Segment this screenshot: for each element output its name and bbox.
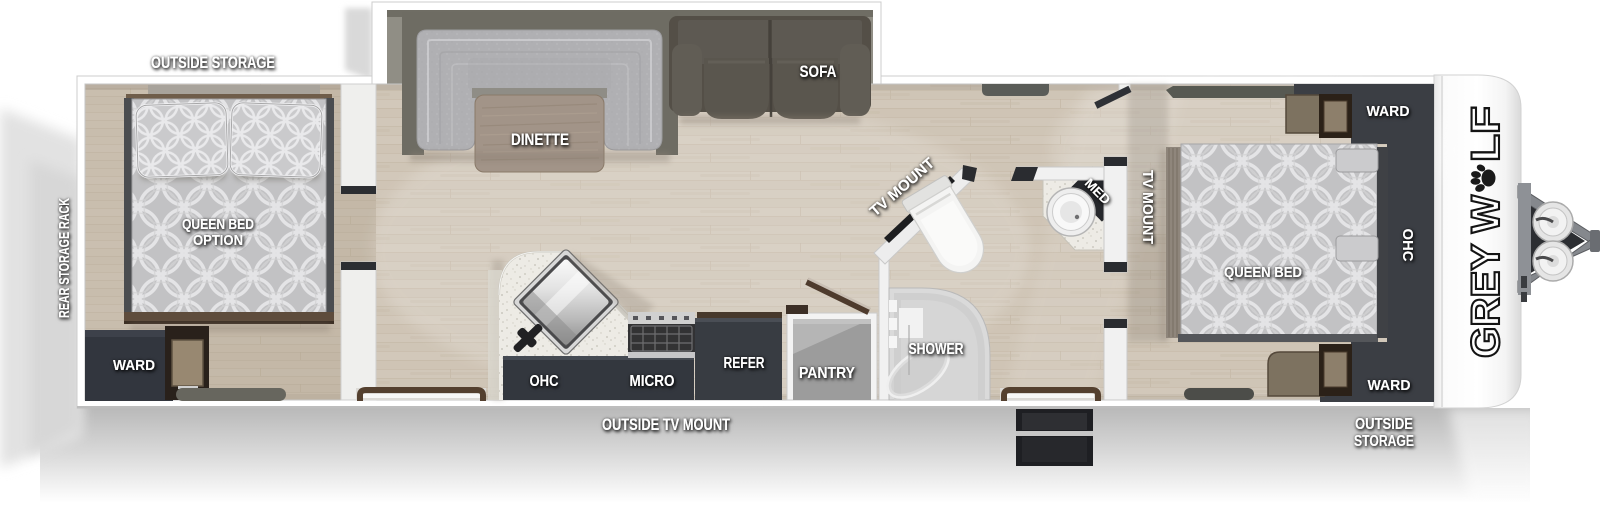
svg-text:LF: LF xyxy=(1464,106,1508,162)
svg-text:WARD: WARD xyxy=(113,357,155,374)
svg-text:REAR STORAGE RACK: REAR STORAGE RACK xyxy=(56,198,73,318)
svg-text:MICRO: MICRO xyxy=(630,373,675,390)
svg-text:QUEEN BED: QUEEN BED xyxy=(1224,264,1302,281)
svg-text:OPTION: OPTION xyxy=(193,232,243,249)
svg-text:OUTSIDE: OUTSIDE xyxy=(1355,416,1413,433)
svg-text:QUEEN BED: QUEEN BED xyxy=(182,216,254,233)
svg-text:OHC: OHC xyxy=(1399,229,1416,262)
svg-text:WARD: WARD xyxy=(1367,103,1410,120)
svg-text:OUTSIDE STORAGE: OUTSIDE STORAGE xyxy=(151,53,275,72)
svg-text:REFER: REFER xyxy=(724,355,765,372)
svg-text:OHC: OHC xyxy=(530,373,559,390)
svg-text:TV MOUNT: TV MOUNT xyxy=(1139,170,1156,244)
svg-text:GREY W: GREY W xyxy=(1464,195,1508,358)
svg-text:STORAGE: STORAGE xyxy=(1354,433,1414,450)
svg-text:WARD: WARD xyxy=(1368,377,1411,394)
svg-text:SOFA: SOFA xyxy=(800,62,837,81)
svg-text:PANTRY: PANTRY xyxy=(799,365,855,382)
svg-text:DINETTE: DINETTE xyxy=(511,130,569,149)
svg-text:SHOWER: SHOWER xyxy=(909,341,964,358)
svg-text:OUTSIDE TV MOUNT: OUTSIDE TV MOUNT xyxy=(602,415,730,434)
